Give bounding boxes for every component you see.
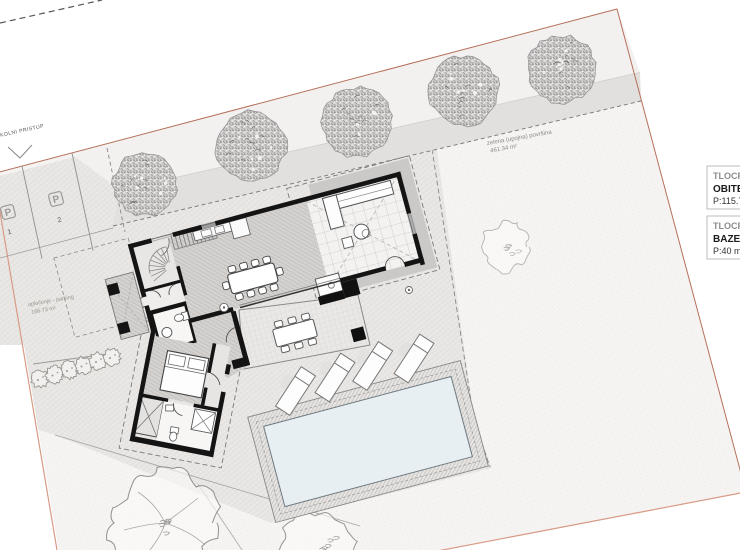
svg-text:TLOCRT: TLOCRT <box>713 171 740 181</box>
svg-text:TLOCRT: TLOCRT <box>713 221 740 231</box>
svg-text:BAZEN: BAZEN <box>713 234 740 245</box>
svg-text:OBITELJ: OBITELJ <box>713 184 740 195</box>
svg-text:P:115.7: P:115.7 <box>713 196 740 206</box>
svg-text:P:40 m²: P:40 m² <box>713 246 740 256</box>
